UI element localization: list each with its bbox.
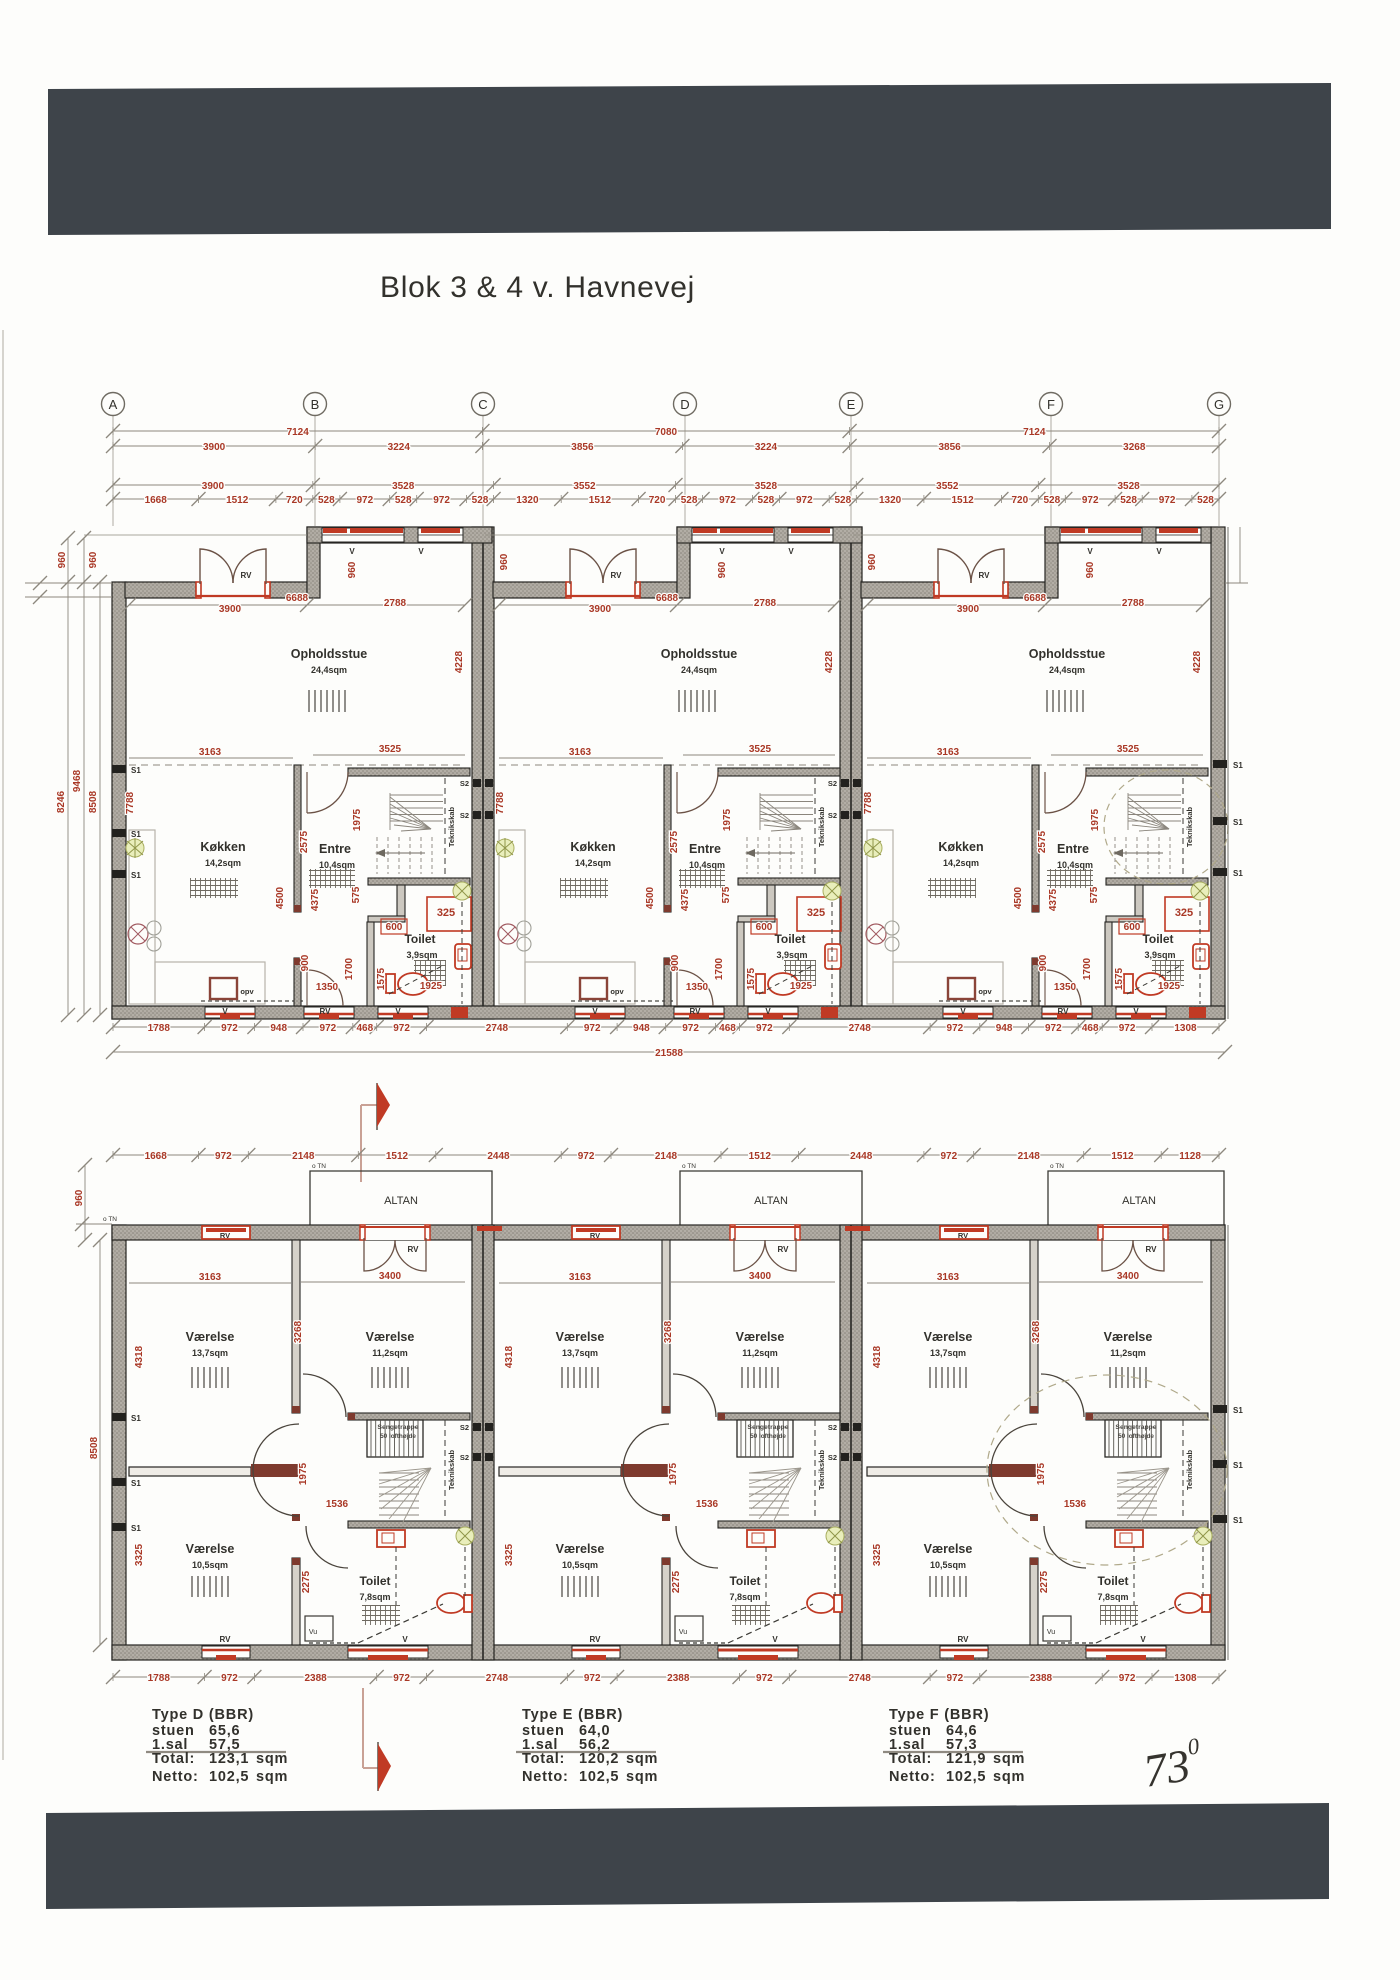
svg-text:4318: 4318 bbox=[504, 1345, 515, 1368]
svg-text:972: 972 bbox=[1082, 495, 1099, 506]
svg-text:720: 720 bbox=[286, 495, 303, 506]
svg-text:RV: RV bbox=[958, 1635, 970, 1644]
svg-text:RV: RV bbox=[241, 571, 253, 580]
svg-text:RV: RV bbox=[1058, 1007, 1070, 1016]
svg-text:528: 528 bbox=[758, 495, 775, 506]
svg-text:o TN: o TN bbox=[1050, 1163, 1064, 1170]
svg-text:972: 972 bbox=[356, 495, 373, 506]
svg-text:600: 600 bbox=[386, 922, 403, 933]
svg-text:Toilet: Toilet bbox=[729, 1574, 760, 1588]
svg-text:6688: 6688 bbox=[1024, 593, 1047, 604]
svg-text:1700: 1700 bbox=[714, 957, 725, 980]
svg-text:V: V bbox=[418, 547, 424, 556]
svg-text:V: V bbox=[1156, 547, 1162, 556]
svg-text:Opholdsstue: Opholdsstue bbox=[1029, 647, 1105, 661]
svg-text:6688: 6688 bbox=[286, 593, 309, 604]
svg-text:14,2sqm: 14,2sqm bbox=[943, 858, 979, 868]
svg-text:8508: 8508 bbox=[89, 1436, 100, 1459]
svg-text:S1: S1 bbox=[131, 766, 141, 775]
svg-text:1320: 1320 bbox=[516, 495, 539, 506]
svg-text:G: G bbox=[1214, 397, 1224, 412]
svg-text:102,5: 102,5 bbox=[209, 1769, 249, 1785]
svg-text:S2: S2 bbox=[460, 811, 469, 820]
svg-text:468: 468 bbox=[719, 1023, 736, 1034]
svg-text:11,2sqm: 11,2sqm bbox=[1110, 1348, 1146, 1358]
svg-text:Køkken: Køkken bbox=[938, 840, 983, 854]
svg-text:Opholdsstue: Opholdsstue bbox=[661, 647, 737, 661]
svg-text:11,2sqm: 11,2sqm bbox=[372, 1348, 408, 1358]
svg-text:3525: 3525 bbox=[379, 744, 402, 755]
svg-text:S2: S2 bbox=[460, 1423, 469, 1432]
svg-text:1350: 1350 bbox=[686, 982, 709, 993]
svg-text:7124: 7124 bbox=[1023, 427, 1046, 438]
svg-text:Sengetrappe: Sengetrappe bbox=[747, 1424, 788, 1431]
svg-text:3900: 3900 bbox=[202, 481, 225, 492]
svg-text:528: 528 bbox=[1043, 495, 1060, 506]
svg-text:4228: 4228 bbox=[1192, 650, 1203, 673]
svg-text:2448: 2448 bbox=[850, 1151, 873, 1162]
svg-text:3528: 3528 bbox=[392, 481, 415, 492]
svg-text:Opholdsstue: Opholdsstue bbox=[291, 647, 367, 661]
svg-text:RV: RV bbox=[590, 1635, 602, 1644]
svg-text:3856: 3856 bbox=[938, 442, 961, 453]
svg-text:3525: 3525 bbox=[1117, 744, 1140, 755]
svg-text:S2: S2 bbox=[828, 811, 837, 820]
svg-text:972: 972 bbox=[1119, 1023, 1136, 1034]
svg-text:972: 972 bbox=[1045, 1023, 1062, 1034]
svg-text:sqm: sqm bbox=[626, 1751, 658, 1767]
svg-text:Værelse: Værelse bbox=[186, 1330, 235, 1344]
svg-text:528: 528 bbox=[395, 495, 412, 506]
svg-text:S2: S2 bbox=[828, 779, 837, 788]
svg-text:1975: 1975 bbox=[1036, 1462, 1047, 1485]
svg-text:1512: 1512 bbox=[226, 495, 249, 506]
svg-text:3400: 3400 bbox=[379, 1271, 402, 1282]
svg-text:972: 972 bbox=[796, 495, 813, 506]
svg-text:E: E bbox=[847, 397, 856, 412]
svg-text:3,9sqm: 3,9sqm bbox=[406, 950, 437, 960]
svg-text:4375: 4375 bbox=[680, 888, 691, 911]
svg-text:Entre: Entre bbox=[319, 842, 351, 856]
svg-text:960: 960 bbox=[74, 1189, 85, 1206]
svg-text:7788: 7788 bbox=[125, 791, 136, 814]
svg-text:3525: 3525 bbox=[749, 744, 772, 755]
svg-text:972: 972 bbox=[947, 1023, 964, 1034]
svg-text:Værelse: Værelse bbox=[924, 1330, 973, 1344]
svg-text:73: 73 bbox=[1140, 1739, 1193, 1797]
svg-text:1512: 1512 bbox=[386, 1151, 409, 1162]
svg-text:3163: 3163 bbox=[569, 1272, 592, 1283]
svg-text:2575: 2575 bbox=[299, 830, 310, 853]
svg-text:F: F bbox=[1047, 397, 1055, 412]
svg-text:V: V bbox=[349, 547, 355, 556]
svg-text:10,5sqm: 10,5sqm bbox=[562, 1560, 598, 1570]
svg-text:13,7sqm: 13,7sqm bbox=[562, 1348, 598, 1358]
svg-text:D: D bbox=[680, 397, 689, 412]
svg-text:972: 972 bbox=[756, 1023, 773, 1034]
svg-text:972: 972 bbox=[940, 1151, 957, 1162]
svg-text:4228: 4228 bbox=[824, 650, 835, 673]
svg-text:7,8sqm: 7,8sqm bbox=[1097, 1592, 1128, 1602]
svg-text:o TN: o TN bbox=[682, 1163, 696, 1170]
svg-text:2275: 2275 bbox=[1039, 1570, 1050, 1593]
svg-text:1975: 1975 bbox=[1090, 808, 1101, 831]
svg-text:RV: RV bbox=[690, 1007, 702, 1016]
svg-text:7,8sqm: 7,8sqm bbox=[729, 1592, 760, 1602]
svg-text:2275: 2275 bbox=[301, 1570, 312, 1593]
svg-text:2448: 2448 bbox=[487, 1151, 510, 1162]
svg-text:1128: 1128 bbox=[1179, 1151, 1201, 1162]
svg-text:7124: 7124 bbox=[287, 427, 310, 438]
svg-text:ALTAN: ALTAN bbox=[1122, 1195, 1156, 1207]
svg-text:Blok 3 & 4 v. Havnevej: Blok 3 & 4 v. Havnevej bbox=[380, 271, 695, 304]
svg-text:4500: 4500 bbox=[275, 886, 286, 909]
svg-text:RV: RV bbox=[220, 1635, 232, 1644]
svg-text:4375: 4375 bbox=[310, 888, 321, 911]
svg-text:Type D (BBR): Type D (BBR) bbox=[152, 1707, 254, 1723]
svg-text:3,9sqm: 3,9sqm bbox=[1144, 950, 1175, 960]
svg-text:1975: 1975 bbox=[298, 1462, 309, 1485]
svg-text:3268: 3268 bbox=[663, 1320, 674, 1343]
svg-text:3325: 3325 bbox=[872, 1543, 883, 1566]
svg-text:ALTAN: ALTAN bbox=[384, 1195, 418, 1207]
svg-text:3325: 3325 bbox=[504, 1543, 515, 1566]
svg-text:720: 720 bbox=[649, 495, 666, 506]
svg-text:RV: RV bbox=[220, 1231, 230, 1240]
svg-text:972: 972 bbox=[719, 495, 736, 506]
svg-text:972: 972 bbox=[221, 1673, 238, 1684]
svg-text:325: 325 bbox=[807, 907, 825, 919]
svg-text:Vu: Vu bbox=[679, 1629, 687, 1636]
svg-text:sqm: sqm bbox=[626, 1769, 658, 1785]
svg-text:972: 972 bbox=[578, 1151, 595, 1162]
svg-text:972: 972 bbox=[584, 1673, 601, 1684]
svg-text:2575: 2575 bbox=[1037, 830, 1048, 853]
svg-text:Toilet: Toilet bbox=[1097, 1574, 1128, 1588]
svg-text:Total:: Total: bbox=[152, 1751, 195, 1767]
svg-text:V: V bbox=[960, 1007, 966, 1016]
svg-text:4500: 4500 bbox=[1013, 886, 1024, 909]
svg-text:Type E (BBR): Type E (BBR) bbox=[522, 1707, 623, 1723]
svg-text:Type F (BBR): Type F (BBR) bbox=[889, 1707, 989, 1723]
svg-text:Sengetrappe: Sengetrappe bbox=[377, 1424, 418, 1431]
svg-text:1575: 1575 bbox=[376, 967, 387, 990]
svg-text:Værelse: Værelse bbox=[366, 1330, 415, 1344]
svg-text:S1: S1 bbox=[1233, 761, 1243, 770]
svg-text:3856: 3856 bbox=[571, 442, 594, 453]
svg-text:Værelse: Værelse bbox=[924, 1542, 973, 1556]
svg-text:24,4sqm: 24,4sqm bbox=[1049, 665, 1085, 675]
svg-text:RV: RV bbox=[979, 571, 991, 580]
svg-text:1975: 1975 bbox=[352, 808, 363, 831]
svg-text:960: 960 bbox=[1085, 561, 1096, 578]
svg-text:RV: RV bbox=[320, 1007, 332, 1016]
svg-text:10,4sqm: 10,4sqm bbox=[689, 860, 725, 870]
svg-text:123,1: 123,1 bbox=[209, 1751, 249, 1767]
svg-text:3900: 3900 bbox=[589, 604, 612, 615]
svg-text:S2: S2 bbox=[460, 779, 469, 788]
svg-text:1788: 1788 bbox=[148, 1673, 171, 1684]
svg-text:960: 960 bbox=[57, 551, 68, 568]
svg-text:3,9sqm: 3,9sqm bbox=[776, 950, 807, 960]
svg-text:1925: 1925 bbox=[790, 981, 813, 992]
svg-text:S1: S1 bbox=[131, 871, 141, 880]
svg-text:468: 468 bbox=[356, 1023, 373, 1034]
svg-text:sqm: sqm bbox=[993, 1751, 1025, 1767]
svg-text:RV: RV bbox=[590, 1231, 600, 1240]
svg-text:Teknikskab: Teknikskab bbox=[817, 1449, 826, 1490]
svg-text:3400: 3400 bbox=[1117, 1271, 1140, 1282]
svg-text:Toilet: Toilet bbox=[404, 932, 435, 946]
svg-text:972: 972 bbox=[433, 495, 450, 506]
svg-text:13,7sqm: 13,7sqm bbox=[192, 1348, 228, 1358]
svg-text:1975: 1975 bbox=[722, 808, 733, 831]
svg-text:102,5: 102,5 bbox=[946, 1769, 986, 1785]
svg-text:8246: 8246 bbox=[56, 790, 67, 813]
svg-text:4318: 4318 bbox=[872, 1345, 883, 1368]
svg-text:Netto:: Netto: bbox=[522, 1769, 569, 1785]
svg-text:S1: S1 bbox=[1233, 1406, 1243, 1415]
svg-text:325: 325 bbox=[437, 907, 455, 919]
svg-text:102,5: 102,5 bbox=[579, 1769, 619, 1785]
svg-text:2388: 2388 bbox=[304, 1673, 327, 1684]
svg-text:3163: 3163 bbox=[937, 1272, 960, 1283]
svg-text:24,4sqm: 24,4sqm bbox=[681, 665, 717, 675]
svg-text:1925: 1925 bbox=[1158, 981, 1181, 992]
svg-text:10,4sqm: 10,4sqm bbox=[319, 860, 355, 870]
svg-text:948: 948 bbox=[996, 1023, 1013, 1034]
svg-text:972: 972 bbox=[947, 1673, 964, 1684]
svg-text:RV: RV bbox=[611, 571, 623, 580]
svg-text:1788: 1788 bbox=[148, 1023, 171, 1034]
svg-text:o TN: o TN bbox=[103, 1216, 117, 1223]
svg-text:V: V bbox=[719, 547, 725, 556]
svg-text:B: B bbox=[311, 397, 320, 412]
svg-text:7788: 7788 bbox=[495, 791, 506, 814]
svg-text:sqm: sqm bbox=[256, 1751, 288, 1767]
svg-text:3400: 3400 bbox=[749, 1271, 772, 1282]
svg-text:2788: 2788 bbox=[1122, 598, 1145, 609]
svg-text:S1: S1 bbox=[131, 1414, 141, 1423]
svg-text:972: 972 bbox=[756, 1673, 773, 1684]
svg-text:S2: S2 bbox=[828, 1423, 837, 1432]
svg-text:2748: 2748 bbox=[849, 1673, 872, 1684]
svg-text:S2: S2 bbox=[828, 1453, 837, 1462]
svg-text:Sengetrappe: Sengetrappe bbox=[1115, 1424, 1156, 1431]
svg-text:7788: 7788 bbox=[863, 791, 874, 814]
svg-text:1668: 1668 bbox=[145, 495, 168, 506]
svg-text:ALTAN: ALTAN bbox=[754, 1195, 788, 1207]
svg-text:50 lofthøjde: 50 lofthøjde bbox=[380, 1433, 416, 1440]
svg-text:3552: 3552 bbox=[573, 481, 596, 492]
svg-text:1575: 1575 bbox=[1114, 967, 1125, 990]
svg-text:720: 720 bbox=[1011, 495, 1028, 506]
svg-text:8508: 8508 bbox=[88, 790, 99, 813]
svg-text:972: 972 bbox=[215, 1151, 232, 1162]
svg-text:1536: 1536 bbox=[696, 1499, 719, 1510]
svg-text:1350: 1350 bbox=[1054, 982, 1077, 993]
svg-text:3900: 3900 bbox=[957, 604, 980, 615]
svg-text:V: V bbox=[402, 1635, 408, 1644]
svg-text:972: 972 bbox=[1159, 495, 1176, 506]
svg-text:3528: 3528 bbox=[755, 481, 778, 492]
svg-text:13,7sqm: 13,7sqm bbox=[930, 1348, 966, 1358]
svg-text:V: V bbox=[788, 547, 794, 556]
svg-text:S1: S1 bbox=[131, 1479, 141, 1488]
svg-text:1536: 1536 bbox=[326, 1499, 349, 1510]
svg-text:Teknikskab: Teknikskab bbox=[1185, 1449, 1194, 1490]
svg-text:V: V bbox=[1087, 547, 1093, 556]
svg-text:Teknikskab: Teknikskab bbox=[817, 806, 826, 847]
svg-text:325: 325 bbox=[1175, 907, 1193, 919]
svg-text:1308: 1308 bbox=[1174, 1023, 1197, 1034]
svg-text:3163: 3163 bbox=[199, 1272, 222, 1283]
svg-text:1512: 1512 bbox=[1111, 1151, 1134, 1162]
svg-text:RV: RV bbox=[1146, 1245, 1158, 1254]
svg-text:972: 972 bbox=[1119, 1673, 1136, 1684]
svg-text:Toilet: Toilet bbox=[774, 932, 805, 946]
svg-text:Netto:: Netto: bbox=[152, 1769, 199, 1785]
svg-text:11,2sqm: 11,2sqm bbox=[742, 1348, 778, 1358]
svg-text:RV: RV bbox=[958, 1231, 968, 1240]
svg-text:948: 948 bbox=[633, 1023, 650, 1034]
svg-text:960: 960 bbox=[347, 561, 358, 578]
svg-text:24,4sqm: 24,4sqm bbox=[311, 665, 347, 675]
svg-text:Netto:: Netto: bbox=[889, 1769, 936, 1785]
svg-text:900: 900 bbox=[300, 954, 311, 971]
svg-text:960: 960 bbox=[88, 551, 99, 568]
svg-text:1320: 1320 bbox=[879, 495, 902, 506]
svg-text:Værelse: Værelse bbox=[736, 1330, 785, 1344]
svg-text:4375: 4375 bbox=[1048, 888, 1059, 911]
svg-text:3325: 3325 bbox=[134, 1543, 145, 1566]
svg-text:2748: 2748 bbox=[849, 1023, 872, 1034]
svg-text:50 lofthøjde: 50 lofthøjde bbox=[1118, 1433, 1154, 1440]
svg-text:3900: 3900 bbox=[219, 604, 242, 615]
svg-text:528: 528 bbox=[834, 495, 851, 506]
svg-text:3224: 3224 bbox=[755, 442, 778, 453]
svg-text:1350: 1350 bbox=[316, 982, 339, 993]
svg-text:10,4sqm: 10,4sqm bbox=[1057, 860, 1093, 870]
svg-text:50 lofthøjde: 50 lofthøjde bbox=[750, 1433, 786, 1440]
svg-text:2148: 2148 bbox=[292, 1151, 315, 1162]
svg-text:972: 972 bbox=[584, 1023, 601, 1034]
svg-text:S2: S2 bbox=[460, 1453, 469, 1462]
svg-text:o TN: o TN bbox=[312, 1163, 326, 1170]
svg-text:21588: 21588 bbox=[655, 1048, 683, 1059]
svg-text:V: V bbox=[765, 1007, 771, 1016]
svg-text:Total:: Total: bbox=[889, 1751, 932, 1767]
svg-text:972: 972 bbox=[320, 1023, 337, 1034]
svg-text:972: 972 bbox=[393, 1673, 410, 1684]
svg-text:1308: 1308 bbox=[1174, 1673, 1197, 1684]
svg-text:600: 600 bbox=[756, 922, 773, 933]
svg-text:1700: 1700 bbox=[1082, 957, 1093, 980]
svg-text:3163: 3163 bbox=[937, 747, 960, 758]
svg-text:V: V bbox=[1133, 1007, 1139, 1016]
svg-text:2788: 2788 bbox=[384, 598, 407, 609]
svg-text:10,5sqm: 10,5sqm bbox=[192, 1560, 228, 1570]
svg-text:2148: 2148 bbox=[655, 1151, 678, 1162]
svg-text:9468: 9468 bbox=[72, 769, 83, 792]
svg-text:3224: 3224 bbox=[388, 442, 411, 453]
svg-text:Teknikskab: Teknikskab bbox=[447, 1449, 456, 1490]
svg-text:C: C bbox=[478, 397, 487, 412]
svg-text:528: 528 bbox=[1120, 495, 1137, 506]
svg-text:S1: S1 bbox=[1233, 1516, 1243, 1525]
svg-text:V: V bbox=[395, 1007, 401, 1016]
svg-text:Værelse: Værelse bbox=[186, 1542, 235, 1556]
svg-text:2148: 2148 bbox=[1018, 1151, 1041, 1162]
svg-text:3268: 3268 bbox=[293, 1320, 304, 1343]
svg-text:opv: opv bbox=[978, 987, 992, 996]
svg-text:972: 972 bbox=[682, 1023, 699, 1034]
svg-text:S1: S1 bbox=[1233, 818, 1243, 827]
svg-text:972: 972 bbox=[221, 1023, 238, 1034]
svg-text:V: V bbox=[592, 1007, 598, 1016]
svg-text:1975: 1975 bbox=[668, 1462, 679, 1485]
svg-text:3268: 3268 bbox=[1123, 442, 1146, 453]
svg-text:Køkken: Køkken bbox=[570, 840, 615, 854]
svg-text:10,5sqm: 10,5sqm bbox=[930, 1560, 966, 1570]
svg-text:7080: 7080 bbox=[655, 427, 678, 438]
svg-text:900: 900 bbox=[1038, 954, 1049, 971]
svg-text:RV: RV bbox=[778, 1245, 790, 1254]
svg-text:Toilet: Toilet bbox=[359, 1574, 390, 1588]
svg-text:S1: S1 bbox=[1233, 1461, 1243, 1470]
svg-text:Vu: Vu bbox=[309, 1629, 317, 1636]
svg-text:V: V bbox=[222, 1007, 228, 1016]
svg-text:Toilet: Toilet bbox=[1142, 932, 1173, 946]
svg-text:RV: RV bbox=[408, 1245, 420, 1254]
svg-text:6688: 6688 bbox=[656, 593, 679, 604]
svg-text:1512: 1512 bbox=[589, 495, 612, 506]
svg-text:4500: 4500 bbox=[645, 886, 656, 909]
svg-text:2575: 2575 bbox=[669, 830, 680, 853]
svg-text:121,9: 121,9 bbox=[946, 1751, 986, 1767]
svg-text:3900: 3900 bbox=[203, 442, 226, 453]
svg-text:1668: 1668 bbox=[145, 1151, 168, 1162]
svg-text:600: 600 bbox=[1124, 922, 1141, 933]
svg-text:1512: 1512 bbox=[951, 495, 974, 506]
svg-text:Total:: Total: bbox=[522, 1751, 565, 1767]
svg-text:opv: opv bbox=[610, 987, 624, 996]
svg-text:2748: 2748 bbox=[486, 1023, 509, 1034]
svg-text:sqm: sqm bbox=[993, 1769, 1025, 1785]
svg-text:120,2: 120,2 bbox=[579, 1751, 619, 1767]
svg-text:960: 960 bbox=[717, 561, 728, 578]
svg-text:Værelse: Værelse bbox=[556, 1330, 605, 1344]
svg-text:Entre: Entre bbox=[689, 842, 721, 856]
svg-text:Teknikskab: Teknikskab bbox=[447, 806, 456, 847]
svg-text:575: 575 bbox=[351, 886, 362, 903]
svg-text:4318: 4318 bbox=[134, 1345, 145, 1368]
svg-text:2788: 2788 bbox=[754, 598, 777, 609]
svg-text:900: 900 bbox=[670, 954, 681, 971]
svg-text:2388: 2388 bbox=[667, 1673, 690, 1684]
svg-text:Værelse: Værelse bbox=[1104, 1330, 1153, 1344]
svg-text:2388: 2388 bbox=[1030, 1673, 1053, 1684]
svg-text:2748: 2748 bbox=[486, 1673, 509, 1684]
svg-text:528: 528 bbox=[318, 495, 335, 506]
svg-text:468: 468 bbox=[1082, 1023, 1099, 1034]
svg-text:Teknikskab: Teknikskab bbox=[1185, 806, 1194, 847]
svg-text:528: 528 bbox=[681, 495, 698, 506]
svg-text:V: V bbox=[772, 1635, 778, 1644]
svg-text:528: 528 bbox=[1197, 495, 1214, 506]
svg-text:S1: S1 bbox=[131, 1524, 141, 1533]
svg-text:3552: 3552 bbox=[936, 481, 959, 492]
